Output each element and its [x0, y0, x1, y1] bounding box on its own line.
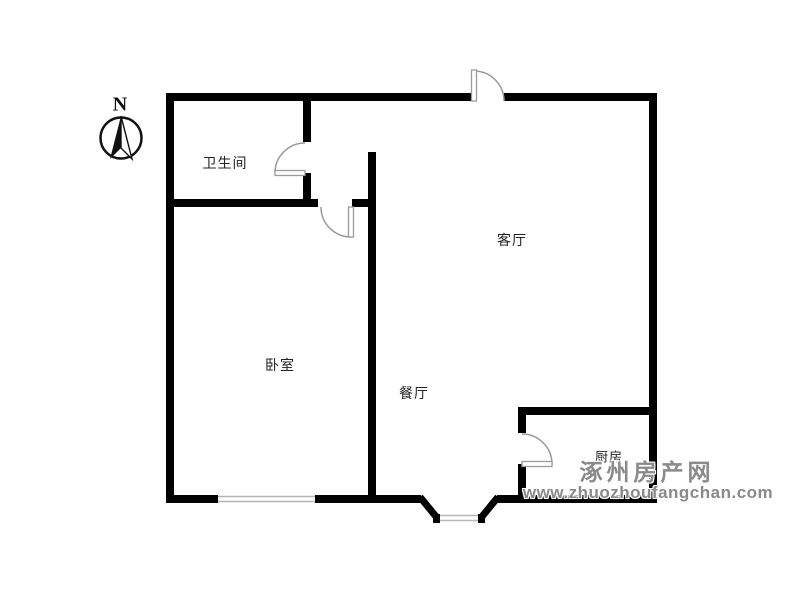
compass-north-label: N — [113, 94, 127, 117]
bedroom-window — [218, 495, 315, 503]
floorplan-drawing — [0, 0, 800, 600]
kitchen-door — [522, 434, 552, 467]
bedroom-door-leaf — [349, 207, 354, 237]
wall-right-outer — [649, 93, 657, 503]
kitchen-door-swing-arc — [522, 434, 552, 464]
room-label-bedroom: 卧室 — [265, 355, 295, 375]
bedroom-door-swing-arc — [321, 207, 351, 237]
entrance-door-leaf — [472, 70, 477, 101]
bathroom-door-swing-arc — [275, 143, 305, 173]
north-compass-icon — [101, 116, 142, 159]
wall-kitchen-left-upper — [518, 407, 526, 433]
watermark-site-url: www.zhuozhoufangchan.com — [523, 483, 773, 503]
bay-window — [420, 497, 498, 523]
wall-kitchen-top — [518, 407, 657, 415]
wall-top-right-of-entrance — [504, 93, 657, 101]
kitchen-door-leaf — [522, 462, 552, 467]
room-label-living-room: 客厅 — [497, 230, 527, 250]
room-label-dining-room: 餐厅 — [399, 383, 429, 403]
watermark-site-name: 涿州房产网 — [580, 453, 715, 487]
wall-bedroom-dining-divider — [368, 152, 376, 503]
wall-bathroom-right-upper — [303, 101, 311, 142]
bathroom-door-leaf — [275, 171, 305, 176]
bay-window-mullion — [478, 514, 485, 523]
bay-window-mullion — [433, 514, 440, 523]
wall-left-outer — [166, 93, 174, 503]
floorplan-canvas: N 卫生间 客厅 卧室 餐厅 厨房 涿州房产网 www.zhuozhoufang… — [0, 0, 800, 600]
room-label-bathroom: 卫生间 — [203, 153, 248, 173]
wall-top-left-of-entrance — [166, 93, 474, 101]
entrance-door-swing-arc — [474, 71, 504, 101]
wall-bathroom-bottom — [166, 199, 318, 207]
bathroom-door — [275, 143, 305, 176]
entrance-door — [472, 70, 505, 101]
bedroom-door — [321, 207, 354, 237]
wall-bottom-left — [166, 495, 218, 503]
